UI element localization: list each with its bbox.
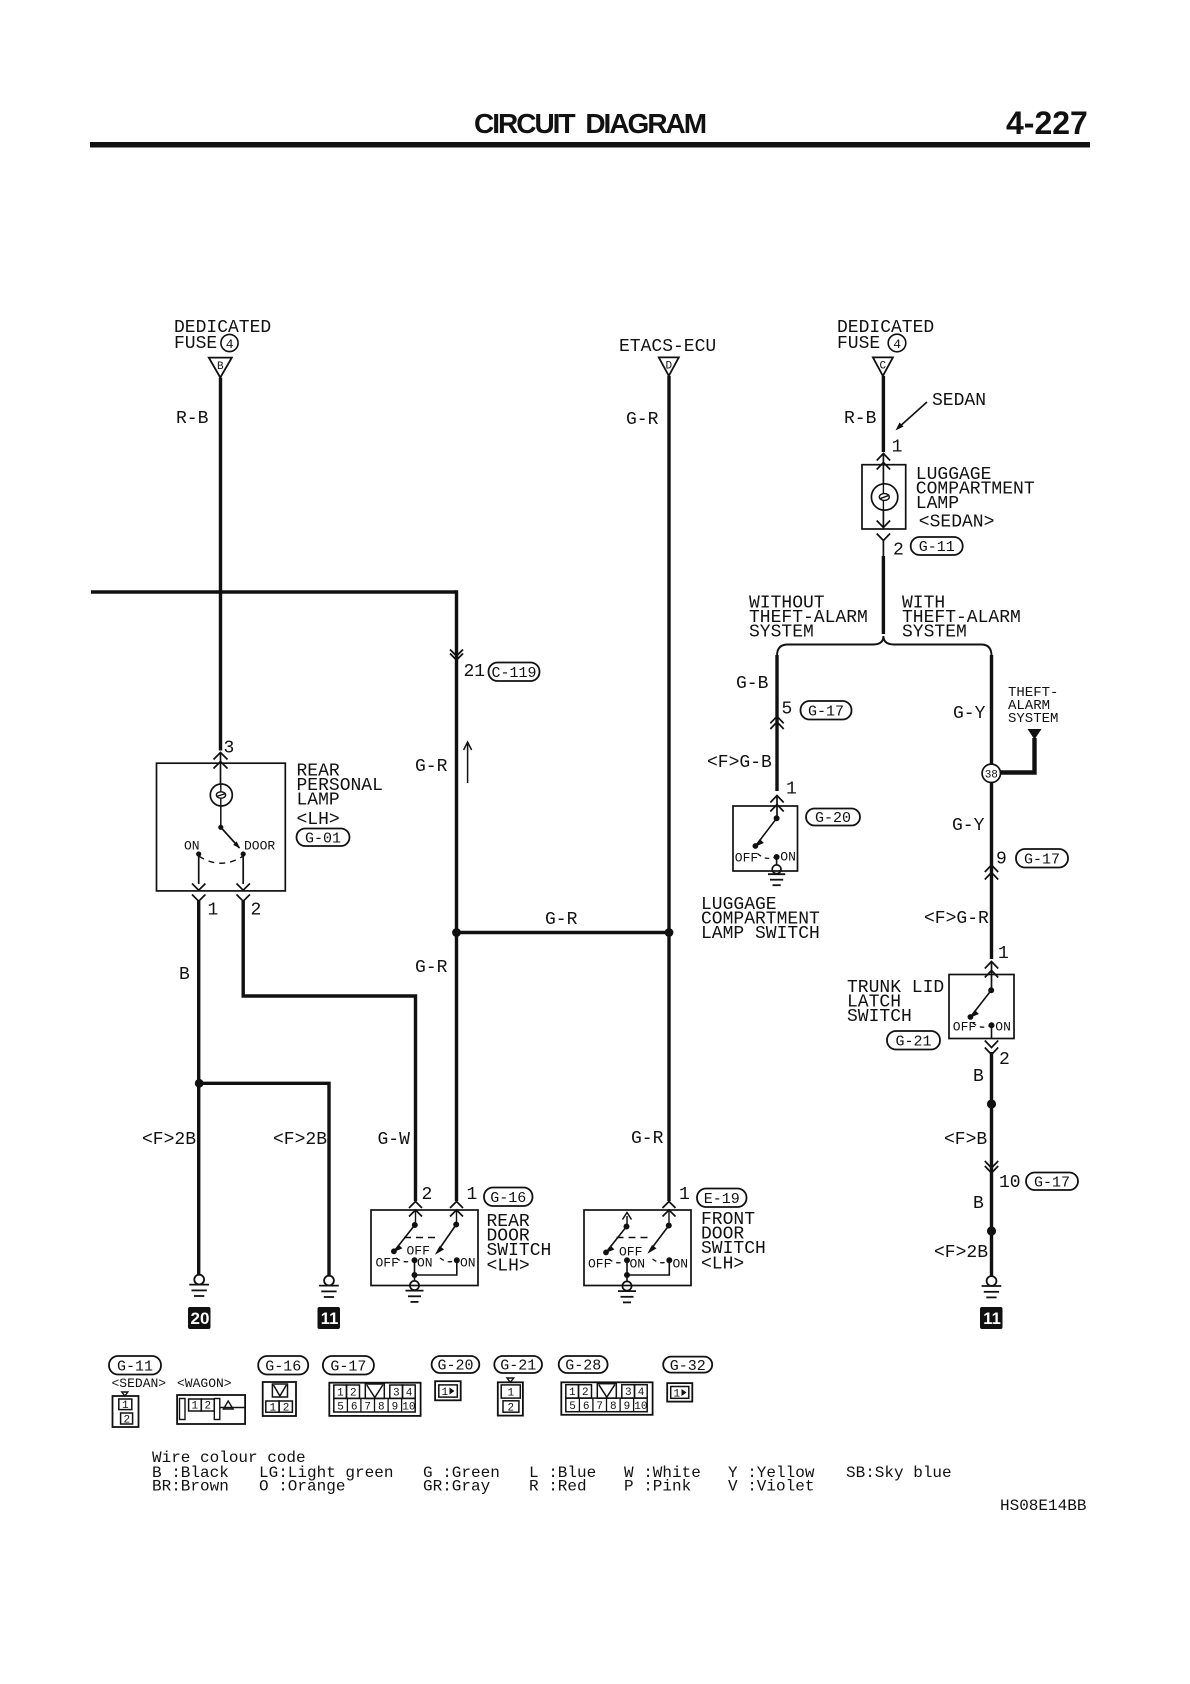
svg-text:OFF: OFF <box>735 851 758 866</box>
svg-text:ON: ON <box>673 1257 689 1272</box>
svg-text:LAMP: LAMP <box>297 791 340 811</box>
svg-text:G-20: G-20 <box>815 810 851 827</box>
svg-text:SEDAN: SEDAN <box>932 391 986 411</box>
svg-text:9: 9 <box>624 1401 631 1413</box>
svg-text:DOOR: DOOR <box>244 839 275 854</box>
svg-text:G-Y: G-Y <box>952 816 985 836</box>
svg-text:ON: ON <box>460 1256 476 1271</box>
svg-text:SYSTEM: SYSTEM <box>1008 711 1058 727</box>
svg-text:10: 10 <box>999 1173 1021 1193</box>
svg-text:G-R: G-R <box>545 910 578 930</box>
svg-text:G-B: G-B <box>736 674 769 694</box>
svg-text:2: 2 <box>508 1403 515 1415</box>
svg-text:SWITCH: SWITCH <box>847 1007 912 1027</box>
svg-text:<LH>: <LH> <box>297 810 340 830</box>
svg-text:1: 1 <box>892 438 903 458</box>
svg-text:1: 1 <box>679 1185 690 1205</box>
svg-text:ON: ON <box>630 1257 646 1272</box>
svg-text:2: 2 <box>422 1185 433 1205</box>
svg-text:<SEDAN>: <SEDAN> <box>919 513 995 533</box>
svg-text:<F>G-B: <F>G-B <box>707 753 772 773</box>
svg-text:E-19: E-19 <box>704 1191 740 1208</box>
svg-text:1: 1 <box>674 1389 681 1401</box>
svg-text:4: 4 <box>893 337 901 352</box>
svg-text:G-11: G-11 <box>117 1359 153 1376</box>
svg-text:7: 7 <box>596 1401 603 1413</box>
svg-text:11: 11 <box>983 1310 1000 1328</box>
svg-text:2: 2 <box>251 901 262 921</box>
svg-text:4: 4 <box>406 1388 413 1400</box>
svg-text:G-Y: G-Y <box>953 704 986 724</box>
svg-text:OFF: OFF <box>953 1020 976 1035</box>
svg-text:<F>G-R: <F>G-R <box>924 909 989 929</box>
svg-text:G-17: G-17 <box>1024 852 1060 869</box>
svg-text:1: 1 <box>192 1401 199 1413</box>
svg-text:20: 20 <box>191 1309 210 1328</box>
svg-text:10: 10 <box>634 1401 647 1413</box>
svg-text:9: 9 <box>392 1402 399 1414</box>
svg-text:2: 2 <box>283 1403 290 1415</box>
svg-text:5: 5 <box>337 1402 344 1414</box>
svg-text:G-R: G-R <box>415 757 448 777</box>
svg-text:<F>2B: <F>2B <box>934 1243 988 1263</box>
svg-text:C-119: C-119 <box>492 665 537 682</box>
svg-text:<WAGON>: <WAGON> <box>177 1376 232 1391</box>
svg-text:SYSTEM: SYSTEM <box>749 623 814 643</box>
svg-text:G-16: G-16 <box>265 1359 301 1376</box>
svg-text:9: 9 <box>996 850 1007 870</box>
svg-text:G-01: G-01 <box>305 831 341 848</box>
svg-text:8: 8 <box>378 1402 385 1414</box>
svg-text:LAMP SWITCH: LAMP SWITCH <box>701 924 820 944</box>
svg-text:G-11: G-11 <box>919 539 955 556</box>
svg-text:G-28: G-28 <box>565 1358 601 1375</box>
svg-text:SYSTEM: SYSTEM <box>902 623 967 643</box>
svg-text:B: B <box>973 1067 984 1087</box>
svg-text:FUSE: FUSE <box>174 334 217 354</box>
svg-text:R-B: R-B <box>844 409 877 429</box>
svg-text:2: 2 <box>582 1387 589 1399</box>
svg-text:4: 4 <box>226 337 234 352</box>
svg-text:5: 5 <box>782 700 793 720</box>
svg-text:P :Pink: P :Pink <box>624 1478 691 1496</box>
svg-text:2: 2 <box>999 1050 1010 1070</box>
svg-text:OFF: OFF <box>588 1257 611 1272</box>
svg-text:1: 1 <box>998 944 1009 964</box>
svg-text:G-17: G-17 <box>1034 1174 1070 1191</box>
svg-text:2: 2 <box>893 541 904 561</box>
svg-text:<F>B: <F>B <box>944 1130 987 1150</box>
svg-text:2: 2 <box>124 1415 131 1427</box>
svg-text:B: B <box>179 965 190 985</box>
svg-text:B: B <box>217 361 224 373</box>
svg-text:4-227: 4-227 <box>1006 105 1088 141</box>
svg-text:G-17: G-17 <box>330 1359 366 1376</box>
svg-text:ETACS-ECU: ETACS-ECU <box>619 337 716 357</box>
svg-text:11: 11 <box>321 1310 338 1328</box>
svg-text:1: 1 <box>122 1400 129 1412</box>
svg-text:ON: ON <box>417 1256 433 1271</box>
svg-text:21: 21 <box>464 662 486 682</box>
svg-text:SB:Sky blue: SB:Sky blue <box>846 1464 952 1482</box>
svg-text:3: 3 <box>625 1387 632 1399</box>
svg-text:C: C <box>880 361 887 373</box>
svg-text:5: 5 <box>569 1401 576 1413</box>
svg-text:10: 10 <box>402 1402 415 1414</box>
svg-text:G-32: G-32 <box>670 1358 706 1375</box>
svg-text:ON: ON <box>780 850 796 865</box>
svg-text:OFF: OFF <box>376 1256 399 1271</box>
svg-text:1: 1 <box>208 901 219 921</box>
svg-text:1: 1 <box>442 1387 449 1399</box>
svg-text:D: D <box>666 361 673 373</box>
svg-text:1: 1 <box>270 1403 277 1415</box>
svg-text:G-R: G-R <box>631 1129 664 1149</box>
svg-text:LAMP: LAMP <box>916 494 959 514</box>
svg-text:1: 1 <box>569 1387 576 1399</box>
svg-text:G-W: G-W <box>378 1130 411 1150</box>
svg-text:R :Red: R :Red <box>529 1478 587 1496</box>
svg-text:2: 2 <box>350 1388 357 1400</box>
svg-text:3: 3 <box>224 739 235 759</box>
svg-text:1: 1 <box>786 780 797 800</box>
svg-text:6: 6 <box>351 1402 358 1414</box>
svg-text:G-16: G-16 <box>490 1190 526 1207</box>
svg-text:<SEDAN>: <SEDAN> <box>112 1376 167 1391</box>
svg-text:7: 7 <box>364 1402 371 1414</box>
svg-text:V :Violet: V :Violet <box>728 1478 814 1496</box>
svg-text:G-17: G-17 <box>808 704 844 721</box>
svg-text:O :Orange: O :Orange <box>259 1478 345 1496</box>
svg-text:CIRCUIT DIAGRAM: CIRCUIT DIAGRAM <box>474 108 706 139</box>
svg-text:2: 2 <box>205 1401 212 1413</box>
svg-text:<LH>: <LH> <box>701 1255 744 1275</box>
svg-text:G-21: G-21 <box>500 1358 536 1375</box>
svg-text:FUSE: FUSE <box>837 334 880 354</box>
svg-text:ON: ON <box>995 1020 1011 1035</box>
svg-text:1: 1 <box>508 1388 515 1400</box>
svg-text:4: 4 <box>638 1387 645 1399</box>
svg-text:HS08E14BB: HS08E14BB <box>1000 1497 1086 1515</box>
svg-text:6: 6 <box>583 1401 590 1413</box>
svg-text:G-21: G-21 <box>896 1034 932 1051</box>
svg-text:3: 3 <box>393 1388 400 1400</box>
svg-text:R-B: R-B <box>176 409 209 429</box>
svg-text:8: 8 <box>610 1401 617 1413</box>
svg-text:ON: ON <box>184 839 200 854</box>
svg-text:<F>2B: <F>2B <box>273 1130 327 1150</box>
svg-text:<F>2B: <F>2B <box>142 1130 196 1150</box>
svg-text:38: 38 <box>985 770 998 782</box>
svg-text:1: 1 <box>467 1185 478 1205</box>
svg-text:G-20: G-20 <box>438 1358 474 1375</box>
svg-text:GR:Gray: GR:Gray <box>423 1478 491 1496</box>
svg-text:<LH>: <LH> <box>487 1257 530 1277</box>
svg-text:G-R: G-R <box>626 410 659 430</box>
svg-text:BR:Brown: BR:Brown <box>152 1478 229 1496</box>
svg-text:G-R: G-R <box>415 958 448 978</box>
svg-text:B: B <box>973 1194 984 1214</box>
svg-text:1: 1 <box>337 1388 344 1400</box>
